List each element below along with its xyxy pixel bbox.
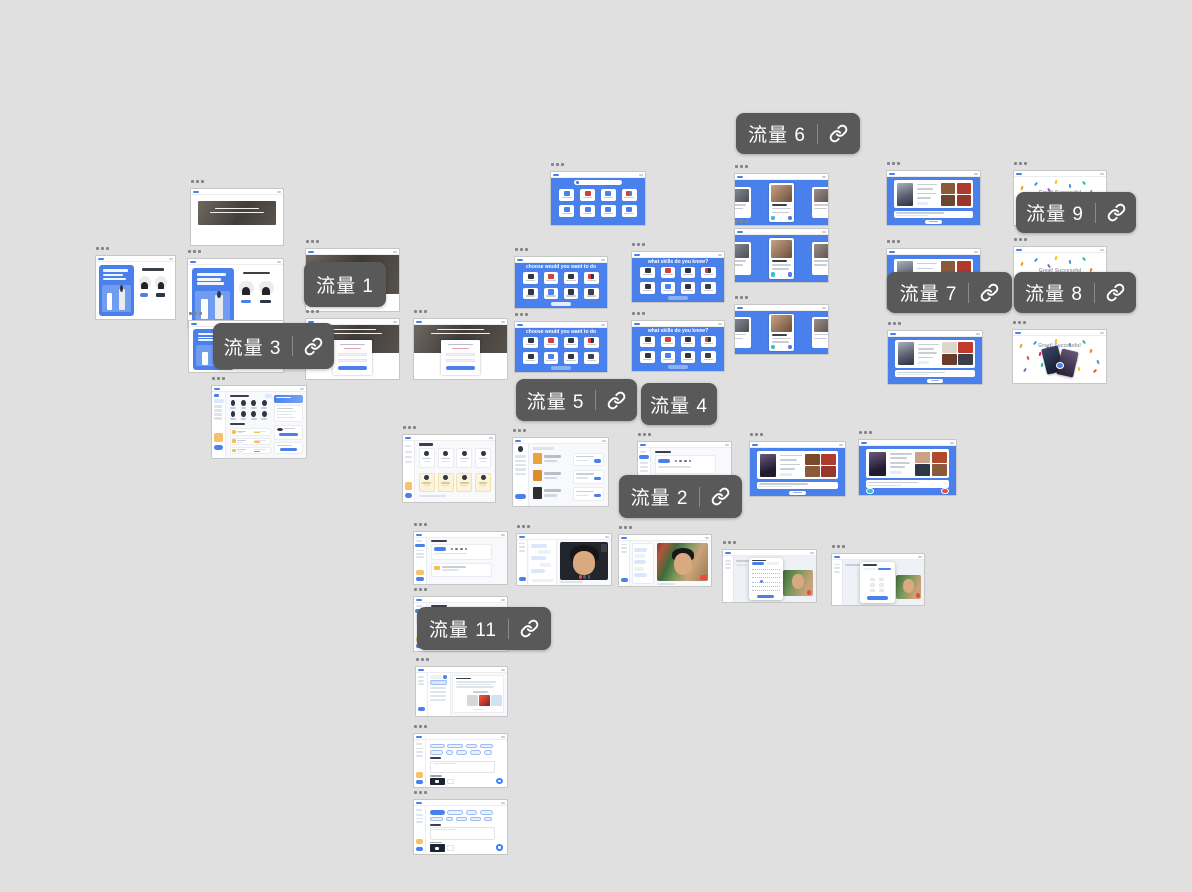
mini-window-controls (501, 534, 505, 536)
mini-site-logo (737, 307, 743, 309)
mini-site-logo (640, 444, 646, 446)
mini-window-controls (918, 556, 922, 558)
mini-site-logo (725, 552, 731, 554)
thumbnail-menu-dots-icon[interactable] (403, 426, 416, 429)
thumbnail-menu-dots-icon[interactable] (515, 313, 528, 316)
thumbnail-menu-dots-icon[interactable] (888, 322, 901, 325)
thumbnail-menu-dots-icon[interactable] (416, 658, 429, 661)
screen-thumbnail-s7-photo_login[interactable] (413, 318, 508, 380)
link-icon[interactable] (304, 337, 323, 356)
screen-thumbnail-s28-dashboard_panel[interactable] (413, 531, 508, 585)
flow-label-text: 流量 5 (527, 387, 585, 414)
mini-window-controls (605, 536, 609, 538)
flow-label-flow-2[interactable]: 流量 2 (619, 475, 742, 518)
mini-window-controls (822, 231, 826, 233)
mini-window-controls (601, 324, 605, 326)
thumbnail-menu-dots-icon[interactable] (306, 240, 319, 243)
mini-window-controls (1100, 173, 1104, 175)
screen-thumbnail-s17-blue_photo_form[interactable] (886, 170, 981, 226)
screen-thumbnail-s31-calendar_modal[interactable] (722, 549, 817, 603)
thumbnail-title: choose would you want to do (515, 264, 607, 270)
mini-page-content (551, 178, 645, 225)
mini-site-logo (834, 556, 840, 558)
thumbnail-menu-dots-icon[interactable] (632, 243, 645, 246)
screen-thumbnail-s16-blue_carousel[interactable] (734, 304, 829, 355)
mini-window-controls (501, 802, 505, 804)
thumbnail-title: choose would you want to do (515, 329, 607, 335)
mini-page-content (735, 180, 828, 225)
screen-thumbnail-s14-blue_carousel[interactable] (734, 173, 829, 226)
mini-page-content (212, 392, 306, 458)
mini-window-controls (501, 321, 505, 323)
thumbnail-menu-dots-icon[interactable] (188, 250, 201, 253)
mini-site-logo (214, 388, 220, 390)
mini-window-controls (725, 444, 729, 446)
mini-window-controls (277, 191, 281, 193)
mini-window-controls (822, 307, 826, 309)
mini-window-controls (277, 261, 281, 263)
flow-label-flow-5[interactable]: 流量 5 (516, 379, 637, 421)
thumbnail-menu-dots-icon[interactable] (551, 163, 564, 166)
mini-page-content (888, 337, 982, 384)
thumbnail-menu-dots-icon[interactable] (96, 247, 109, 250)
thumbnail-menu-dots-icon[interactable] (414, 588, 427, 591)
label-divider (292, 336, 293, 356)
thumbnail-menu-dots-icon[interactable] (632, 312, 645, 315)
thumbnail-menu-dots-icon[interactable] (515, 248, 528, 251)
mini-page-content (414, 325, 507, 379)
mini-page-content: Great! Successful (1013, 336, 1106, 383)
mini-page-content (414, 806, 507, 854)
thumbnail-menu-dots-icon[interactable] (735, 220, 748, 223)
mini-window-controls (501, 599, 505, 601)
mini-window-controls (501, 669, 505, 671)
mini-window-controls (489, 437, 493, 439)
screen-thumbnail-s23-dashboard_cards[interactable] (402, 434, 496, 503)
thumbnail-menu-dots-icon[interactable] (832, 545, 845, 548)
mini-site-logo (634, 254, 640, 256)
mini-window-controls (393, 321, 397, 323)
thumbnail-menu-dots-icon[interactable] (414, 791, 427, 794)
mini-page-content (887, 177, 980, 225)
label-divider (595, 390, 596, 410)
screen-thumbnail-s34-dashboard_detail[interactable] (415, 666, 508, 717)
mini-page-content (191, 195, 283, 245)
mini-window-controls (1100, 332, 1104, 334)
mini-window-controls (974, 173, 978, 175)
mini-page-content (188, 265, 283, 328)
mini-page-content (619, 541, 711, 586)
screen-thumbnail-s35-pills_form[interactable] (413, 733, 508, 788)
label-divider (508, 619, 509, 639)
link-icon[interactable] (829, 124, 848, 143)
mini-page-content (96, 262, 175, 319)
mini-site-logo (517, 324, 523, 326)
thumbnail-menu-dots-icon[interactable] (414, 523, 427, 526)
mini-window-controls (974, 251, 978, 253)
flow-label-flow-4[interactable]: 流量 4 (641, 383, 717, 425)
thumbnail-menu-dots-icon[interactable] (189, 312, 202, 315)
screen-thumbnail-s8-dashboard_home[interactable] (211, 385, 307, 459)
mini-page-content (832, 560, 924, 605)
thumbnail-menu-dots-icon[interactable] (619, 526, 632, 529)
mini-site-logo (193, 191, 199, 193)
mini-page-content (517, 540, 611, 585)
mini-window-controls (822, 176, 826, 178)
mini-page-content (723, 556, 816, 602)
mini-site-logo (737, 176, 743, 178)
mini-site-logo (553, 174, 559, 176)
link-icon[interactable] (980, 283, 999, 302)
mini-window-controls (810, 552, 814, 554)
thumbnail-menu-dots-icon[interactable] (191, 180, 204, 183)
screen-thumbnail-s30-video_call[interactable] (618, 534, 712, 587)
thumbnail-menu-dots-icon[interactable] (859, 431, 872, 434)
mini-window-controls (393, 251, 397, 253)
mini-site-logo (621, 537, 627, 539)
mini-site-logo (889, 173, 895, 175)
label-divider (968, 283, 969, 303)
thumbnail-menu-dots-icon[interactable] (735, 165, 748, 168)
thumbnail-menu-dots-icon[interactable] (735, 296, 748, 299)
flow-label-text: 流量 11 (429, 615, 497, 642)
screen-thumbnail-s11-blue_grid[interactable]: what skills do you know? (631, 251, 725, 303)
screen-thumbnail-s15-blue_carousel[interactable] (734, 228, 829, 283)
thumbnail-title: Great! Successful (1013, 343, 1106, 349)
mini-window-controls (169, 258, 173, 260)
flow-label-text: 流量 4 (650, 391, 708, 418)
mini-window-controls (300, 388, 304, 390)
thumbnail-menu-dots-icon[interactable] (1013, 321, 1026, 324)
thumbnail-menu-dots-icon[interactable] (887, 162, 900, 165)
flow-label-text: 流量 3 (224, 333, 282, 360)
mini-page-content (414, 740, 507, 787)
mini-window-controls (602, 440, 606, 442)
mini-site-logo (519, 536, 525, 538)
screen-thumbnail-s12-blue_grid[interactable]: choose would you want to do (514, 321, 608, 373)
screen-thumbnail-s26-blue_photo_form[interactable] (749, 441, 846, 497)
flow-label-text: 流量 9 (1026, 199, 1084, 226)
mini-window-controls (718, 254, 722, 256)
mini-site-logo (98, 258, 104, 260)
flow-label-text: 流量 6 (748, 120, 806, 147)
link-icon[interactable] (607, 391, 626, 410)
screen-thumbnail-s29-video_call[interactable] (516, 533, 612, 586)
link-icon[interactable] (520, 619, 539, 638)
mini-window-controls (601, 259, 605, 261)
mini-site-logo (405, 437, 411, 439)
thumbnail-menu-dots-icon[interactable] (1014, 162, 1027, 165)
thumbnail-menu-dots-icon[interactable] (887, 240, 900, 243)
mini-site-logo (1016, 249, 1022, 251)
link-icon[interactable] (1106, 283, 1125, 302)
mini-site-logo (889, 251, 895, 253)
flow-label-flow-7[interactable]: 流量 7 (887, 272, 1012, 313)
flow-label-text: 流量 8 (1025, 279, 1083, 306)
label-divider (699, 487, 700, 507)
flow-label-text: 流量 1 (316, 271, 374, 298)
mini-site-logo (190, 261, 196, 263)
thumbnail-menu-dots-icon[interactable] (513, 429, 526, 432)
screen-thumbnail-s1-hero_banner[interactable] (190, 188, 284, 246)
mini-window-controls (976, 333, 980, 335)
screen-thumbnail-s21-blue_photo_form[interactable] (887, 330, 983, 385)
mini-site-logo (1016, 173, 1022, 175)
thumbnail-menu-dots-icon[interactable] (750, 433, 763, 436)
mini-page-content: what skills do you know? (632, 327, 724, 371)
flow-label-flow-8[interactable]: 流量 8 (1014, 272, 1136, 313)
screen-thumbnail-s36-pills_form[interactable] (413, 799, 508, 855)
thumbnail-menu-dots-icon[interactable] (723, 541, 736, 544)
mini-page-content (735, 311, 828, 354)
screen-thumbnail-s13-blue_grid[interactable]: what skills do you know? (631, 320, 725, 372)
screen-thumbnail-s10-blue_grid[interactable]: choose would you want to do (514, 256, 608, 309)
thumbnail-menu-dots-icon[interactable] (1014, 238, 1027, 241)
screen-thumbnail-s22-confetti_cards[interactable]: Great! Successful (1012, 329, 1107, 384)
mini-window-controls (839, 444, 843, 446)
mini-site-logo (191, 323, 197, 325)
mini-window-controls (639, 174, 643, 176)
mini-window-controls (501, 736, 505, 738)
link-icon[interactable] (1107, 203, 1126, 222)
mini-page-content (513, 444, 608, 506)
label-divider (1094, 283, 1095, 303)
thumbnail-menu-dots-icon[interactable] (638, 433, 651, 436)
flow-label-text: 流量 7 (900, 279, 958, 306)
mini-site-logo (416, 599, 422, 601)
mini-site-logo (890, 333, 896, 335)
thumbnail-menu-dots-icon[interactable] (212, 377, 225, 380)
mini-page-content: choose would you want to do (515, 263, 607, 308)
screen-thumbnail-s32-time_modal[interactable] (831, 553, 925, 606)
label-divider (817, 124, 818, 144)
mini-window-controls (718, 323, 722, 325)
thumbnail-title: what skills do you know? (632, 328, 724, 334)
mini-page-content (414, 538, 507, 584)
mini-site-logo (308, 251, 314, 253)
flow-label-flow-3[interactable]: 流量 3 (213, 323, 334, 369)
mini-page-content (750, 448, 845, 496)
screen-thumbnail-s2-split_landing[interactable] (95, 255, 176, 320)
mini-page-content (416, 673, 507, 716)
mini-page-content: choose would you want to do (515, 328, 607, 372)
prototype-canvas[interactable]: choose would you want to dowhat skills d… (0, 0, 1192, 892)
link-icon[interactable] (711, 487, 730, 506)
mini-page-content: what skills do you know? (632, 258, 724, 302)
mini-site-logo (416, 534, 422, 536)
mini-site-logo (1015, 332, 1021, 334)
mini-site-logo (861, 442, 867, 444)
flow-label-flow-6[interactable]: 流量 6 (736, 113, 860, 154)
thumbnail-title: what skills do you know? (632, 259, 724, 265)
mini-page-content (735, 235, 828, 282)
mini-site-logo (418, 669, 424, 671)
mini-window-controls (705, 537, 709, 539)
thumbnail-menu-dots-icon[interactable] (306, 310, 319, 313)
thumbnail-menu-dots-icon[interactable] (517, 525, 530, 528)
mini-site-logo (515, 440, 521, 442)
mini-site-logo (416, 802, 422, 804)
screen-thumbnail-s9-blue_search_grid[interactable] (550, 171, 646, 226)
flow-label-flow-11[interactable]: 流量 11 (417, 607, 551, 650)
thumbnail-menu-dots-icon[interactable] (414, 310, 427, 313)
screen-thumbnail-s27-blue_photo_form[interactable] (858, 439, 957, 496)
flow-label-flow-9[interactable]: 流量 9 (1016, 192, 1136, 233)
flow-label-flow-1[interactable]: 流量 1 (304, 262, 386, 307)
mini-site-logo (416, 736, 422, 738)
screen-thumbnail-s3-split_landing[interactable] (187, 258, 284, 329)
mini-page-content (859, 446, 956, 495)
screen-thumbnail-s24-dashboard_list[interactable] (512, 437, 609, 507)
mini-site-logo (752, 444, 758, 446)
label-divider (1095, 203, 1096, 223)
mini-site-logo (517, 259, 523, 261)
flow-label-text: 流量 2 (631, 483, 689, 510)
mini-site-logo (634, 323, 640, 325)
mini-window-controls (1100, 249, 1104, 251)
mini-site-logo (416, 321, 422, 323)
thumbnail-menu-dots-icon[interactable] (414, 725, 427, 728)
mini-window-controls (950, 442, 954, 444)
mini-page-content (403, 441, 495, 502)
mini-site-logo (737, 231, 743, 233)
